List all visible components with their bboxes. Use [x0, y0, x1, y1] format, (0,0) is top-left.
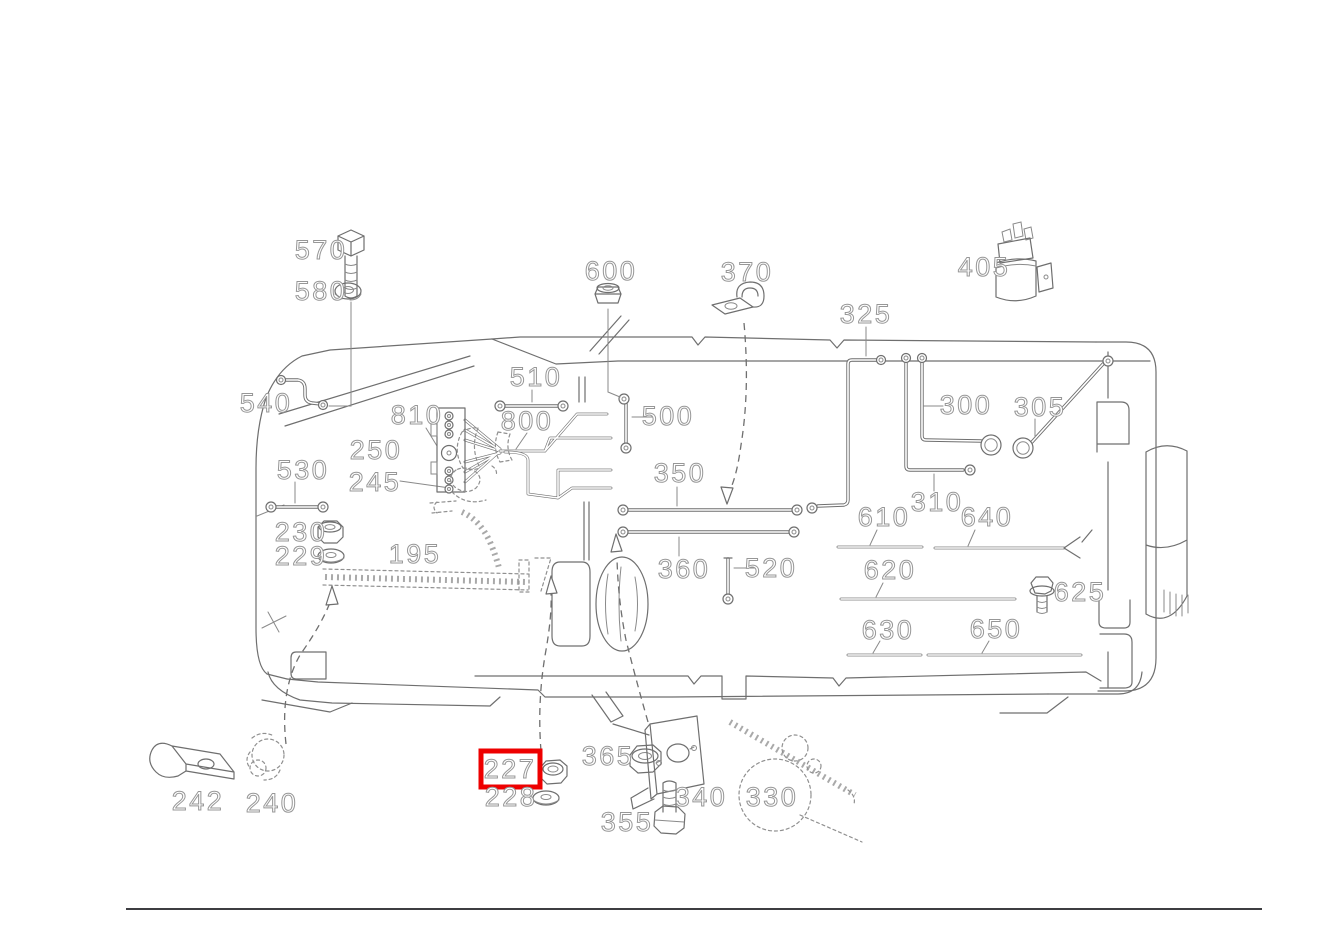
part-label-370[interactable]: 370: [721, 257, 774, 287]
part-label-330[interactable]: 330: [746, 782, 799, 812]
part-label-540[interactable]: 540: [240, 388, 293, 418]
part-label-530[interactable]: 530: [277, 455, 330, 485]
nut-600-drawing: [595, 284, 621, 304]
ring-terminal: [1103, 356, 1113, 366]
ring-terminal: [618, 505, 628, 515]
part-label-245[interactable]: 245: [349, 467, 402, 497]
part-label-640[interactable]: 640: [961, 502, 1014, 532]
grommet-245-drawing: [451, 466, 497, 502]
part-label-610[interactable]: 610: [858, 502, 911, 532]
parts-diagram-page: 5705806003704053255405108108005003003052…: [0, 0, 1326, 937]
cable-continuation-arrow-icon: [1064, 530, 1092, 558]
ring-terminal: [877, 356, 886, 365]
arrow-from-227: [540, 594, 551, 751]
grommet-240-drawing: [247, 733, 284, 780]
part-label-229[interactable]: 229: [275, 541, 328, 571]
part-label-340[interactable]: 340: [675, 782, 728, 812]
part-label-405[interactable]: 405: [958, 252, 1011, 282]
ring-terminal: [965, 465, 975, 475]
ring-terminal: [1013, 438, 1033, 458]
part-label-810[interactable]: 810: [391, 400, 444, 430]
part-label-630[interactable]: 630: [862, 615, 915, 645]
part-label-625[interactable]: 625: [1054, 577, 1107, 607]
arrowhead-icon: [721, 487, 733, 504]
part-label-355[interactable]: 355: [601, 807, 654, 837]
part-label-360[interactable]: 360: [658, 554, 711, 584]
ring-terminal: [789, 527, 799, 537]
part-label-227[interactable]: 227: [484, 754, 537, 784]
clip-242-drawing: [150, 743, 234, 779]
ring-terminal: [318, 502, 328, 512]
ring-terminal: [266, 502, 276, 512]
part-label-228[interactable]: 228: [485, 782, 538, 812]
nut-227-drawing: [540, 760, 567, 784]
part-labels: 5705806003704053255405108108005003003052…: [172, 235, 1107, 837]
part-label-305[interactable]: 305: [1014, 392, 1067, 422]
part-label-510[interactable]: 510: [510, 362, 563, 392]
part-label-500[interactable]: 500: [642, 401, 695, 431]
arrow-to-229: [285, 600, 331, 744]
part-label-310[interactable]: 310: [911, 487, 964, 517]
chassis-outline: [256, 316, 1188, 735]
part-label-365[interactable]: 365: [582, 741, 635, 771]
part-label-570[interactable]: 570: [295, 235, 348, 265]
nut-365-drawing: [630, 745, 661, 773]
part-label-580[interactable]: 580: [295, 276, 348, 306]
part-label-195[interactable]: 195: [389, 539, 442, 569]
ring-terminal: [918, 354, 927, 363]
part-label-325[interactable]: 325: [840, 299, 893, 329]
ring-terminal: [621, 443, 631, 453]
ring-terminal: [319, 401, 328, 410]
part-label-242[interactable]: 242: [172, 786, 225, 816]
bolt-625-drawing: [1030, 577, 1054, 614]
ring-terminal: [618, 527, 628, 537]
ring-terminal: [981, 435, 1001, 455]
part-label-800[interactable]: 800: [501, 406, 554, 436]
arrow-from-370: [730, 323, 746, 490]
part-label-250[interactable]: 250: [350, 435, 403, 465]
ring-terminal: [902, 354, 911, 363]
part-label-600[interactable]: 600: [585, 256, 638, 286]
part-label-520[interactable]: 520: [745, 553, 798, 583]
arrowhead-icon: [546, 576, 557, 594]
part-label-300[interactable]: 300: [940, 390, 993, 420]
part-label-350[interactable]: 350: [654, 458, 707, 488]
ring-terminal: [807, 503, 817, 513]
part-label-650[interactable]: 650: [970, 614, 1023, 644]
ring-terminal: [277, 376, 286, 385]
ring-terminal: [792, 505, 802, 515]
part-label-620[interactable]: 620: [864, 555, 917, 585]
ring-terminal: [723, 594, 733, 604]
ring-terminal: [558, 401, 568, 411]
arrowhead-icon: [326, 586, 338, 605]
parts-diagram: 5705806003704053255405108108005003003052…: [0, 0, 1326, 937]
ring-terminal: [619, 394, 629, 404]
part-label-240[interactable]: 240: [246, 788, 299, 818]
